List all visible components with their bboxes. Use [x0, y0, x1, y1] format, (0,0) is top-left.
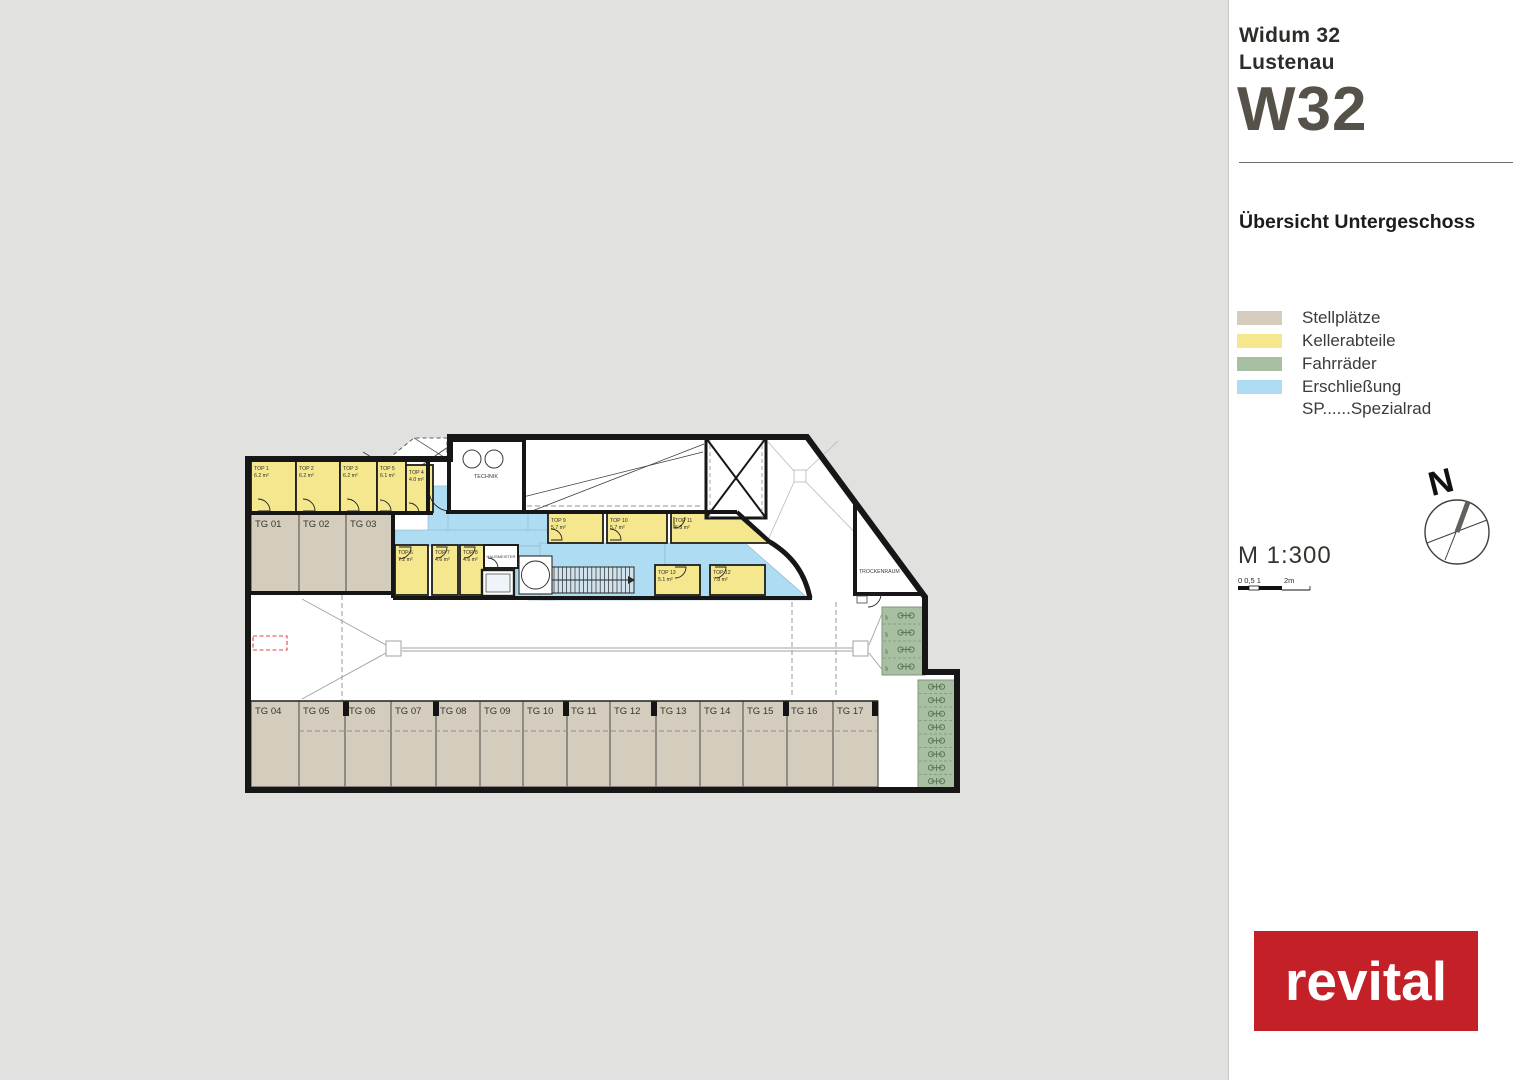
plan-label: TG 12	[614, 706, 640, 717]
plan-label: TROCKENRAUM	[859, 569, 900, 575]
legend-label: Fahrräder	[1302, 354, 1377, 374]
plan-label: TG 05	[303, 706, 329, 717]
plan-label: TOP 9	[551, 518, 566, 524]
plan-label: TG 13	[660, 706, 686, 717]
column	[343, 701, 349, 716]
plan-label: TG 01	[255, 519, 281, 530]
column	[783, 701, 789, 716]
legend-row-fahrraeder: Fahrräder	[1237, 352, 1401, 375]
logo-text: revital	[1285, 949, 1447, 1013]
fahrraeder-swatch	[1237, 357, 1282, 371]
info-panel: Widum 32 Lustenau W32 Übersicht Unterges…	[1228, 0, 1527, 1080]
legend-row-stellplaetze: Stellplätze	[1237, 306, 1401, 329]
drain-box	[386, 641, 401, 656]
column	[433, 701, 439, 716]
plan-label: SP	[885, 615, 889, 621]
plan-label: 5.7 m²	[610, 525, 625, 531]
scale-ticks: 0 0,5 1	[1238, 576, 1261, 585]
plan-label: TG 17	[837, 706, 863, 717]
plan-label: TG 04	[255, 706, 281, 717]
plan-label: TOP 2	[299, 466, 314, 472]
plan-label: SP	[885, 666, 889, 672]
plan-label: TOP 3	[343, 466, 358, 472]
drain-box	[853, 641, 868, 656]
plan-label: TOP 7	[435, 550, 450, 556]
plan-label: TG 07	[395, 706, 421, 717]
plan-label: HAUSMEISTER	[487, 554, 516, 559]
plan-label: SP	[885, 632, 889, 638]
legend-row-erschliessung: Erschließung	[1237, 375, 1401, 398]
column	[563, 701, 569, 716]
plan-label: 4.0 m²	[409, 477, 424, 483]
exterior-structure	[388, 438, 447, 459]
logo: revital	[1254, 931, 1478, 1031]
plan-label: TG 11	[571, 706, 597, 717]
project-city: Lustenau	[1239, 49, 1340, 76]
plan-label: TOP 10	[610, 518, 628, 524]
project-name: Widum 32	[1239, 22, 1340, 49]
plan-label: TECHNIK	[474, 474, 498, 480]
plan-label: 6.2 m²	[254, 473, 269, 479]
plan-label: TOP 13	[658, 570, 676, 576]
plan-label: SP	[885, 649, 889, 655]
scale-bar: 0 0,5 1 2m	[1237, 576, 1327, 594]
kellerabteile-swatch	[1237, 334, 1282, 348]
north-label: N	[1424, 461, 1457, 504]
plan-label: TG 16	[791, 706, 817, 717]
legend-label: Stellplätze	[1302, 308, 1380, 328]
plan-label: TG 02	[303, 519, 329, 530]
divider	[1239, 162, 1513, 163]
plan-label: TG 06	[349, 706, 375, 717]
scale-end: 2m	[1284, 576, 1294, 585]
plan-label: 6.2 m²	[299, 473, 314, 479]
plan-label: TG 03	[350, 519, 376, 530]
project-title: Widum 32 Lustenau	[1239, 22, 1340, 76]
plan-label: 5.1 m²	[658, 577, 673, 583]
circulation-area	[395, 530, 555, 546]
meter-box	[857, 596, 867, 603]
plan-label: 6.1 m²	[380, 473, 395, 479]
page-title: Übersicht Untergeschoss	[1239, 211, 1475, 234]
legend-label: Erschließung	[1302, 377, 1401, 397]
column	[651, 701, 657, 716]
north-arrow: N	[1395, 456, 1525, 586]
stellplaetze-swatch	[1237, 311, 1282, 325]
plan-label: TOP 4	[409, 470, 424, 476]
plan-label: 7.2 m²	[398, 557, 413, 563]
plan-label: 6.2 m²	[343, 473, 358, 479]
legend-note: SP......Spezialrad	[1302, 399, 1431, 419]
plan-label: TG 09	[484, 706, 510, 717]
plan-label: TG 10	[527, 706, 553, 717]
elevator	[519, 556, 552, 594]
plan-label: TOP 8	[463, 550, 478, 556]
column	[872, 701, 878, 716]
plan-label: TG 14	[704, 706, 730, 717]
plan-label: 5.7 m²	[551, 525, 566, 531]
project-code: W32	[1237, 74, 1367, 145]
plan-label: TOP 5	[380, 466, 395, 472]
floor-plan-panel: TOP 16.2 m²TOP 26.2 m²TOP 36.2 m²TOP 56.…	[0, 0, 1228, 1080]
floor-plan: TOP 16.2 m²TOP 26.2 m²TOP 36.2 m²TOP 56.…	[0, 0, 1228, 1080]
erschliessung-swatch	[1237, 380, 1282, 394]
legend-row-kellerabteile: Kellerabteile	[1237, 329, 1401, 352]
plan-label: TG 15	[747, 706, 773, 717]
plan-label: TOP 1	[254, 466, 269, 472]
legend: StellplätzeKellerabteileFahrräderErschli…	[1237, 306, 1401, 398]
legend-label: Kellerabteile	[1302, 331, 1396, 351]
scale-label: M 1:300	[1238, 542, 1332, 570]
plan-label: TG 08	[440, 706, 466, 717]
